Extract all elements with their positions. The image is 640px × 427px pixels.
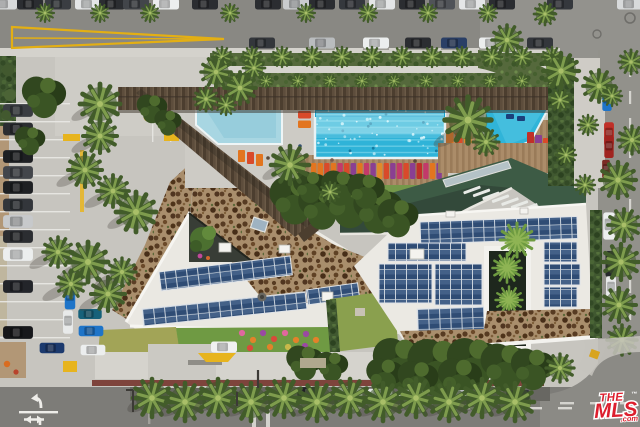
svg-text:.com: .com <box>620 414 638 424</box>
svg-text:™: ™ <box>631 391 637 398</box>
